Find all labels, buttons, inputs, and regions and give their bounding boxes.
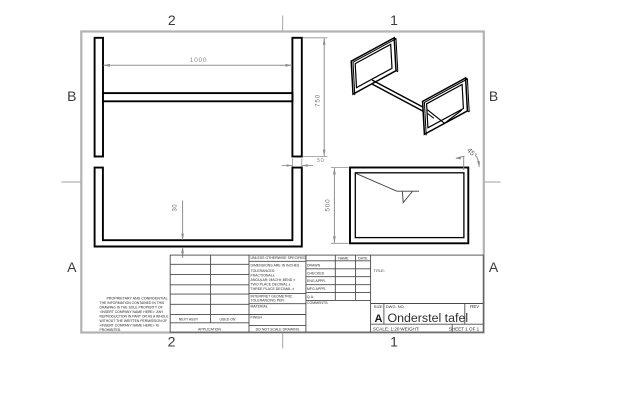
svg-text:DATE: DATE xyxy=(358,256,368,260)
svg-text:ANGULAR: MACH± BEND ±: ANGULAR: MACH± BEND ± xyxy=(251,278,296,282)
svg-text:COMMENTS:: COMMENTS: xyxy=(307,301,328,305)
svg-text:500: 500 xyxy=(325,198,332,211)
svg-text:PROHIBITED.: PROHIBITED. xyxy=(100,328,122,332)
svg-text:Q.A.: Q.A. xyxy=(307,295,314,299)
svg-text:PROPRIETARY AND CONFIDENTIAL: PROPRIETARY AND CONFIDENTIAL xyxy=(107,297,168,301)
svg-text:SIZE: SIZE xyxy=(374,304,383,309)
svg-text:TWO PLACE DECIMAL ±: TWO PLACE DECIMAL ± xyxy=(251,283,291,287)
svg-text:WITHOUT THE WRITTEN PERMISSION: WITHOUT THE WRITTEN PERMISSION OF xyxy=(100,319,168,323)
svg-text:UNLESS OTHERWISE SPECIFIED:: UNLESS OTHERWISE SPECIFIED: xyxy=(251,256,308,260)
svg-text:DWG. NO.: DWG. NO. xyxy=(386,304,405,309)
svg-text:DRAWN: DRAWN xyxy=(307,263,321,267)
svg-text:TOLERANCES:: TOLERANCES: xyxy=(251,269,276,273)
svg-text:2: 2 xyxy=(168,12,176,28)
svg-text:A: A xyxy=(375,313,383,325)
svg-text:MATERIAL: MATERIAL xyxy=(251,305,268,309)
svg-text:FRACTIONAL±: FRACTIONAL± xyxy=(251,274,275,278)
svg-text:USED ON: USED ON xyxy=(220,318,236,322)
svg-text:750: 750 xyxy=(314,94,321,107)
svg-text:A: A xyxy=(67,259,77,275)
svg-text:REV: REV xyxy=(470,304,479,309)
svg-text:1: 1 xyxy=(390,334,398,350)
svg-text:DRAWING IS THE SOLE PROPERTY O: DRAWING IS THE SOLE PROPERTY OF xyxy=(100,306,163,310)
svg-text:NEXT ASSY: NEXT ASSY xyxy=(179,318,199,322)
svg-text:30: 30 xyxy=(173,204,179,212)
svg-text:MFG APPR.: MFG APPR. xyxy=(307,287,326,291)
svg-text:DIMENSIONS ARE IN INCHES: DIMENSIONS ARE IN INCHES xyxy=(251,264,300,268)
svg-text:CHECKED: CHECKED xyxy=(307,271,325,275)
svg-text:THREE PLACE DECIMAL ±: THREE PLACE DECIMAL ± xyxy=(251,287,295,291)
svg-text:THE INFORMATION CONTAINED IN T: THE INFORMATION CONTAINED IN THIS xyxy=(100,301,166,305)
svg-text:1000: 1000 xyxy=(190,57,207,64)
svg-text:2: 2 xyxy=(168,334,176,350)
svg-text:TITLE:: TITLE: xyxy=(374,269,385,273)
svg-text:B: B xyxy=(489,88,498,104)
svg-text:FINISH: FINISH xyxy=(251,315,263,319)
svg-text:B: B xyxy=(67,88,76,104)
svg-text:<INSERT COMPANY NAME HERE>. AN: <INSERT COMPANY NAME HERE>. ANY xyxy=(100,310,165,314)
svg-text:<INSERT COMPANY NAME HERE> IS: <INSERT COMPANY NAME HERE> IS xyxy=(100,324,160,328)
svg-text:DO NOT SCALE DRAWING: DO NOT SCALE DRAWING xyxy=(256,328,300,332)
svg-text:TOLERANCING PER:: TOLERANCING PER: xyxy=(251,299,285,303)
svg-text:A: A xyxy=(489,259,499,275)
svg-text:SHEET 1 OF 1: SHEET 1 OF 1 xyxy=(449,326,480,331)
svg-text:Onderstel tafel: Onderstel tafel xyxy=(388,311,469,325)
svg-text:1: 1 xyxy=(390,12,398,28)
svg-text:NAME: NAME xyxy=(338,256,349,260)
svg-text:50: 50 xyxy=(317,158,324,164)
svg-text:APPLICATION: APPLICATION xyxy=(198,328,221,332)
svg-text:ENG APPR.: ENG APPR. xyxy=(307,279,326,283)
svg-text:REPRODUCTION IN PART OR AS A W: REPRODUCTION IN PART OR AS A WHOLE xyxy=(100,315,170,319)
svg-text:SCALE: 1:20: SCALE: 1:20 xyxy=(373,326,400,331)
svg-text:WEIGHT:: WEIGHT: xyxy=(400,326,419,331)
